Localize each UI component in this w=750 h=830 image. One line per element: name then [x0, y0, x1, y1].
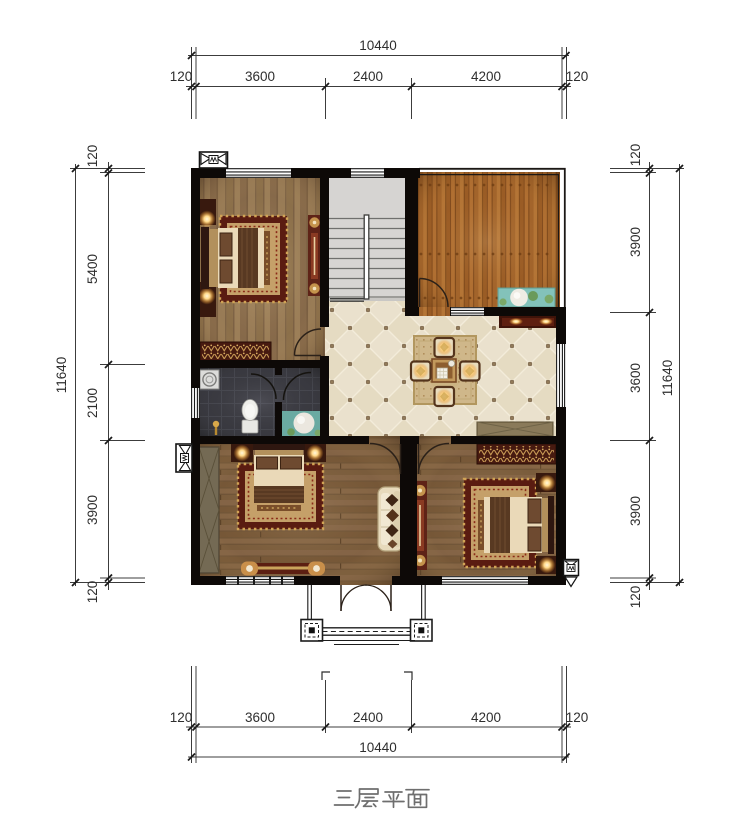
svg-text:120: 120	[628, 144, 643, 167]
svg-text:10440: 10440	[359, 740, 397, 755]
svg-text:3600: 3600	[245, 69, 275, 84]
svg-text:120: 120	[85, 581, 100, 604]
svg-text:3900: 3900	[85, 495, 100, 525]
svg-text:10440: 10440	[359, 38, 397, 53]
svg-text:120: 120	[566, 69, 589, 84]
svg-text:3900: 3900	[628, 227, 643, 257]
svg-text:2100: 2100	[85, 388, 100, 418]
svg-text:3600: 3600	[245, 710, 275, 725]
svg-text:3600: 3600	[628, 363, 643, 393]
svg-text:2400: 2400	[353, 710, 383, 725]
svg-text:120: 120	[85, 145, 100, 168]
svg-text:5400: 5400	[85, 254, 100, 284]
svg-text:4200: 4200	[471, 710, 501, 725]
svg-text:120: 120	[170, 710, 193, 725]
svg-text:120: 120	[170, 69, 193, 84]
svg-text:11640: 11640	[54, 357, 69, 394]
svg-text:4200: 4200	[471, 69, 501, 84]
svg-text:120: 120	[566, 710, 589, 725]
svg-text:120: 120	[628, 586, 643, 609]
svg-text:3900: 3900	[628, 496, 643, 526]
svg-text:11640: 11640	[660, 360, 675, 397]
svg-text:2400: 2400	[353, 69, 383, 84]
